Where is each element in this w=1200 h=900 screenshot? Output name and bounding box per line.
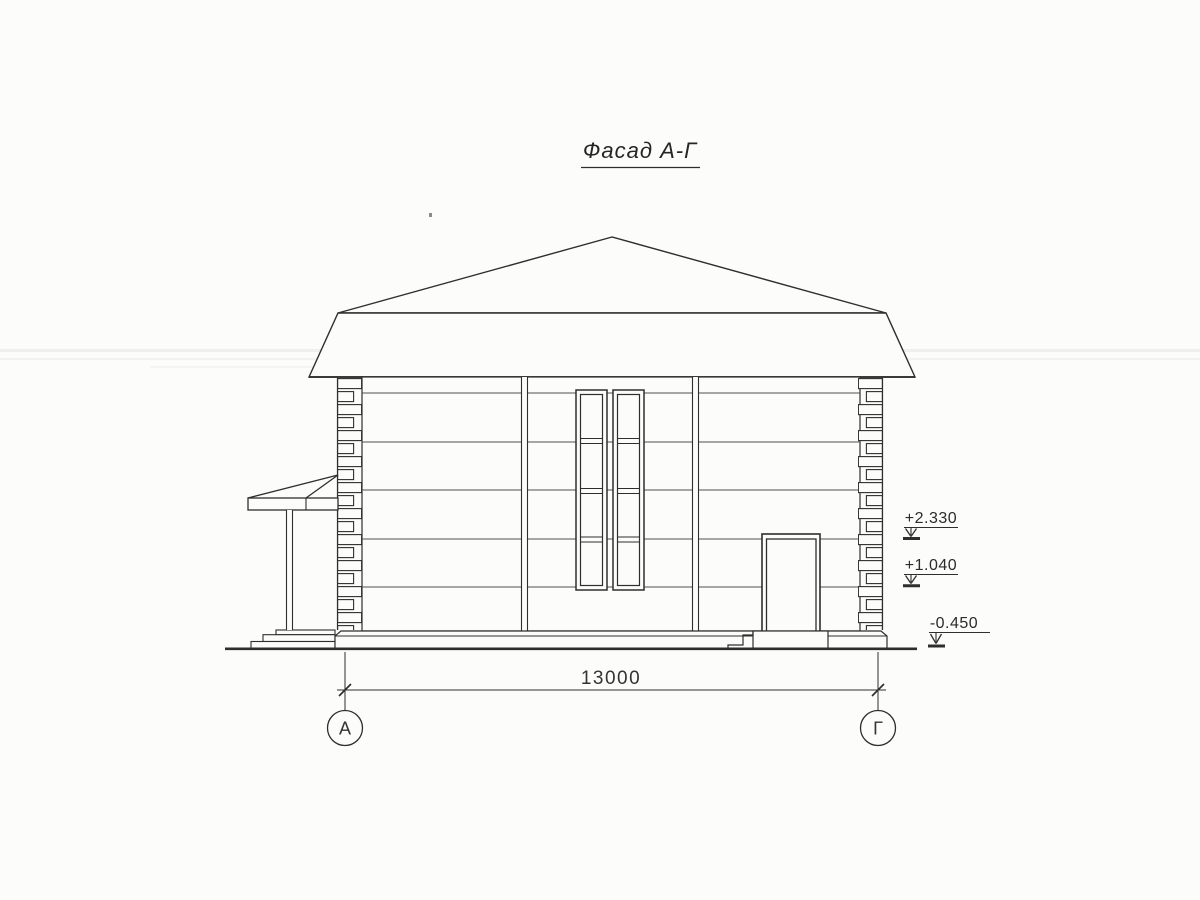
drawing-title: Фасад А-Г [583,138,698,163]
facade-drawing-sheet: Фасад А-Г [0,0,1200,900]
door-outer-frame [762,534,820,634]
axis-label-g: Г [873,719,883,739]
axis-label-a: А [339,719,351,739]
partition-post-right [692,377,699,631]
partition-post-left [521,377,528,631]
axis-circle-g: Г [861,711,896,746]
elevation-value-lower: -0.450 [930,615,978,632]
corner-log-ends-right [858,378,883,630]
porch-post [286,510,293,630]
axis-circle-a: А [328,711,363,746]
facade-drawing: Фасад А-Г [0,0,1200,900]
window-right [613,390,644,590]
window-left [576,390,607,590]
door-platform [753,631,828,649]
entrance-door [762,534,820,634]
canopy-fascia [248,498,338,510]
corner-log-ends-left [337,378,362,630]
dimension-value: 13000 [581,668,641,689]
roof-eaves-band [309,313,915,377]
elevation-value-upper: +2.330 [905,510,957,527]
elevation-value-middle: +1.040 [905,557,957,574]
